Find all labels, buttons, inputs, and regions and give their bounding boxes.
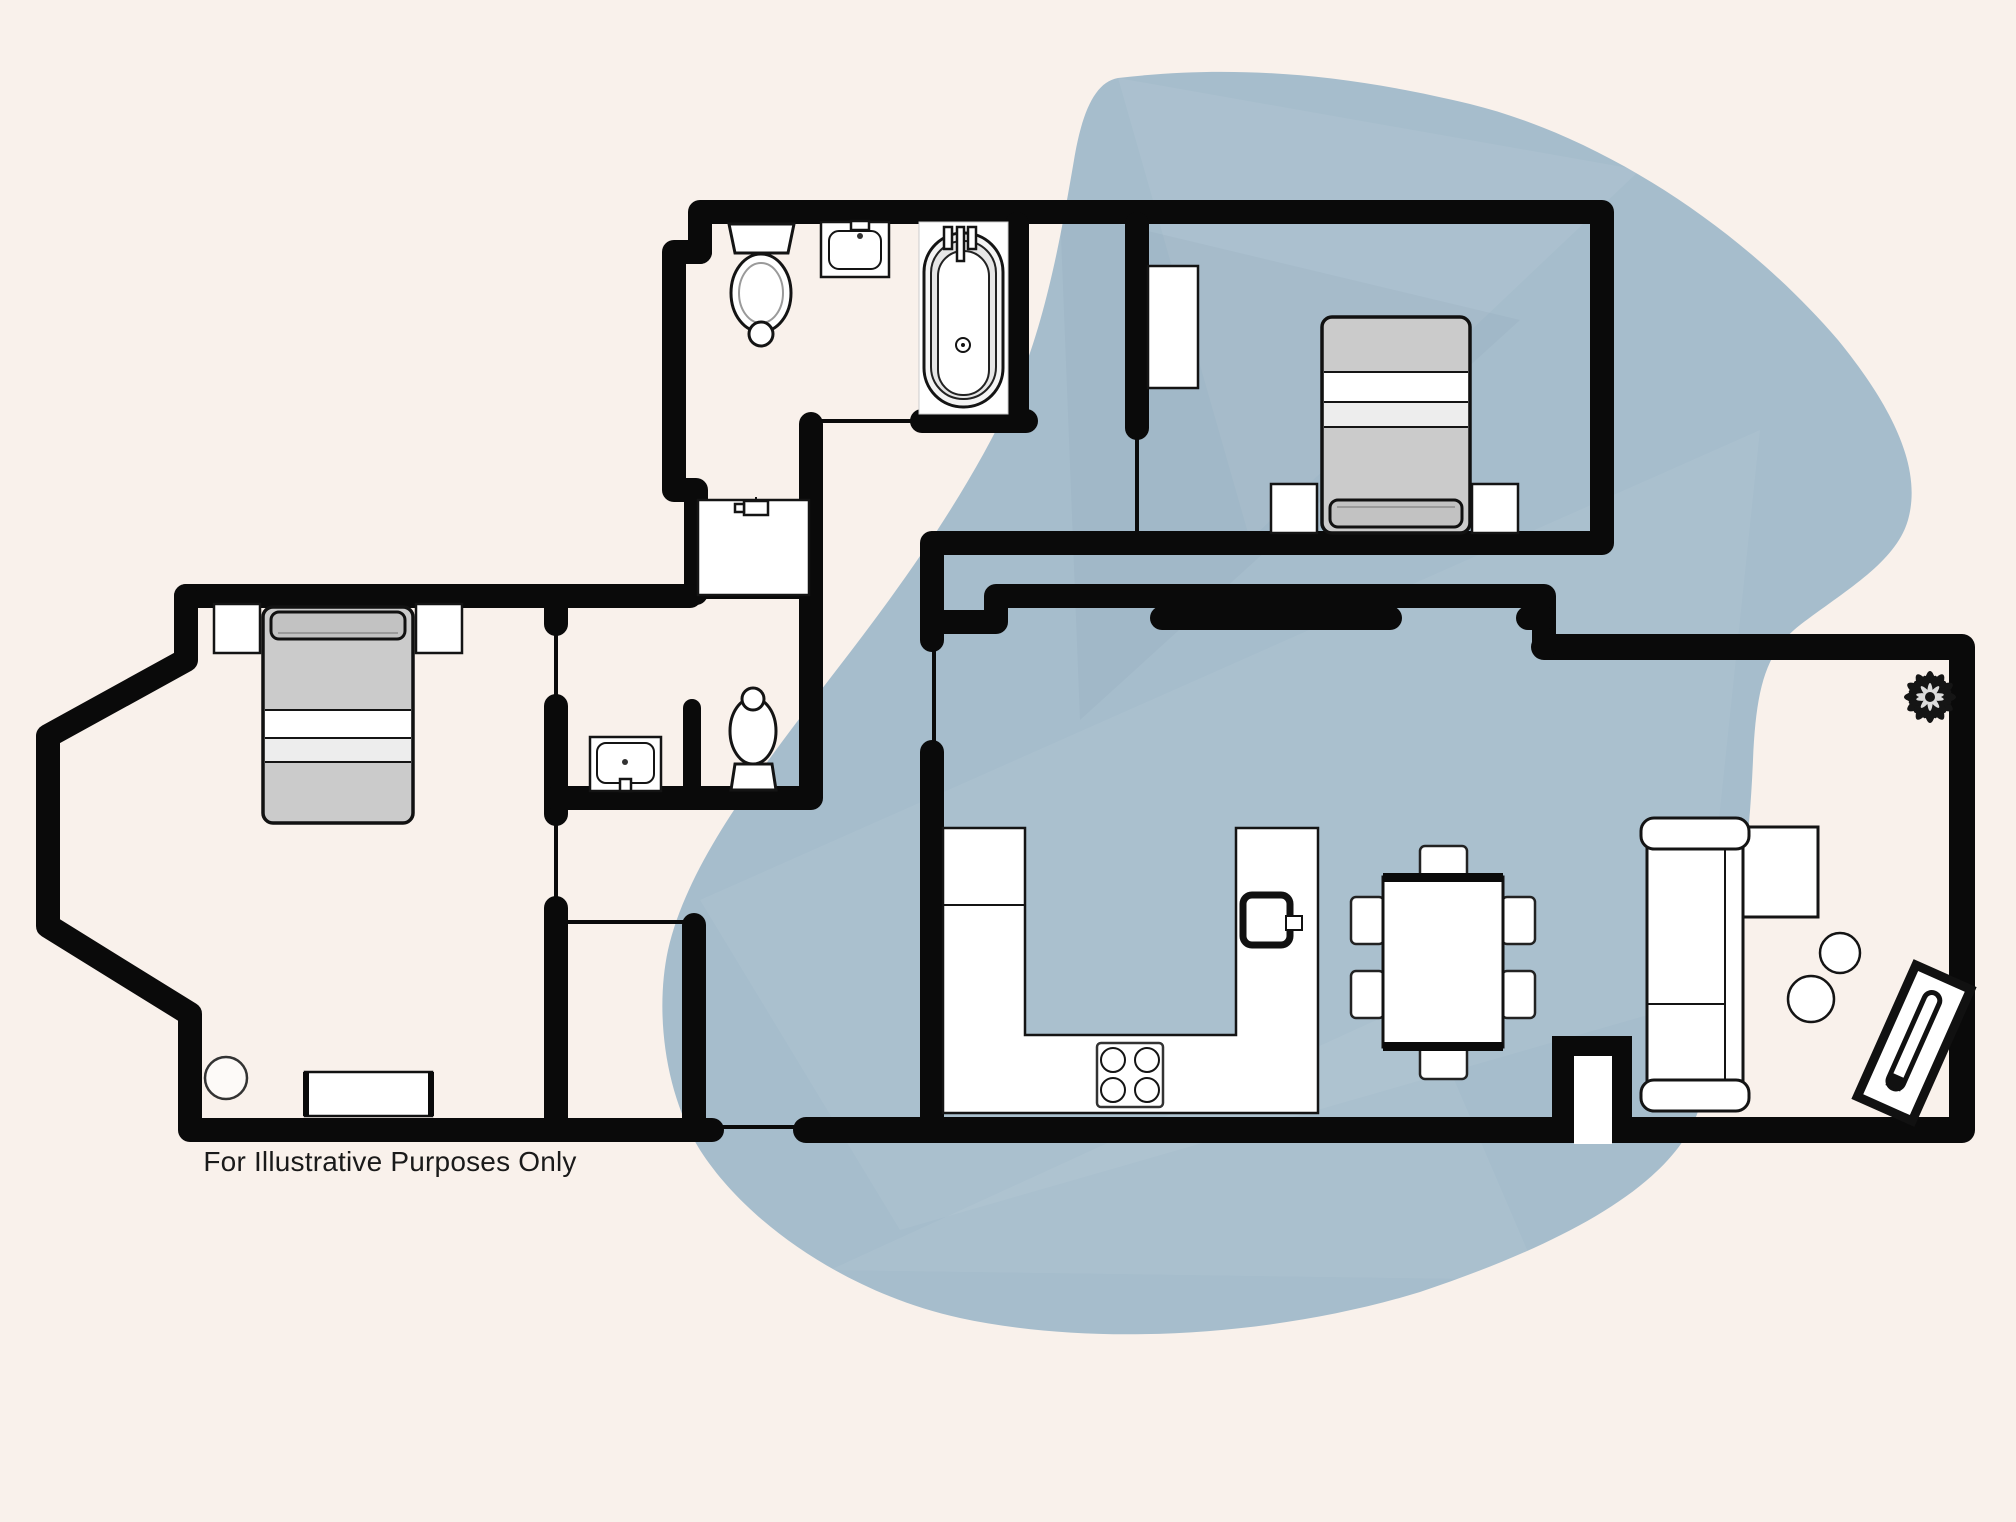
floorplan-drawing bbox=[0, 0, 2016, 1522]
double-bed-icon bbox=[263, 607, 413, 823]
dining-table-icon bbox=[1383, 873, 1503, 1051]
side-table-icon bbox=[1788, 976, 1834, 1022]
bathroom-sink-icon bbox=[821, 221, 889, 277]
bathroom-sink-icon bbox=[590, 737, 661, 791]
bathroom-top bbox=[729, 221, 1008, 414]
caption: For Illustrative Purposes Only bbox=[200, 1146, 580, 1178]
fireplace-niche-opening bbox=[1574, 1056, 1612, 1144]
toilet-icon bbox=[730, 688, 776, 790]
bedroom-left bbox=[205, 604, 462, 1116]
dining-chair-icon bbox=[1351, 897, 1384, 944]
nightstand-icon bbox=[1271, 484, 1317, 533]
sofa-icon bbox=[1641, 818, 1818, 1111]
kitchen-sink-icon bbox=[1243, 895, 1302, 945]
toilet-icon bbox=[729, 224, 794, 346]
dining-chair-icon bbox=[1502, 971, 1535, 1018]
plant-icon bbox=[1904, 671, 1956, 723]
stool-icon bbox=[205, 1057, 247, 1099]
floorplan-canvas: For Illustrative Purposes Only bbox=[0, 0, 2016, 1522]
wardrobe-icon bbox=[1148, 266, 1198, 388]
dining-chair-icon bbox=[1351, 971, 1384, 1018]
side-table-icon bbox=[1820, 933, 1860, 973]
double-bed-icon bbox=[1322, 317, 1470, 533]
dresser-icon bbox=[303, 1072, 434, 1116]
dining-chair-icon bbox=[1502, 897, 1535, 944]
stove-icon bbox=[1097, 1043, 1163, 1107]
utility-closet bbox=[698, 497, 809, 595]
nightstand-icon bbox=[214, 604, 260, 653]
bathtub-icon bbox=[919, 222, 1008, 414]
nightstand-icon bbox=[1472, 484, 1518, 533]
nightstand-icon bbox=[416, 604, 462, 653]
